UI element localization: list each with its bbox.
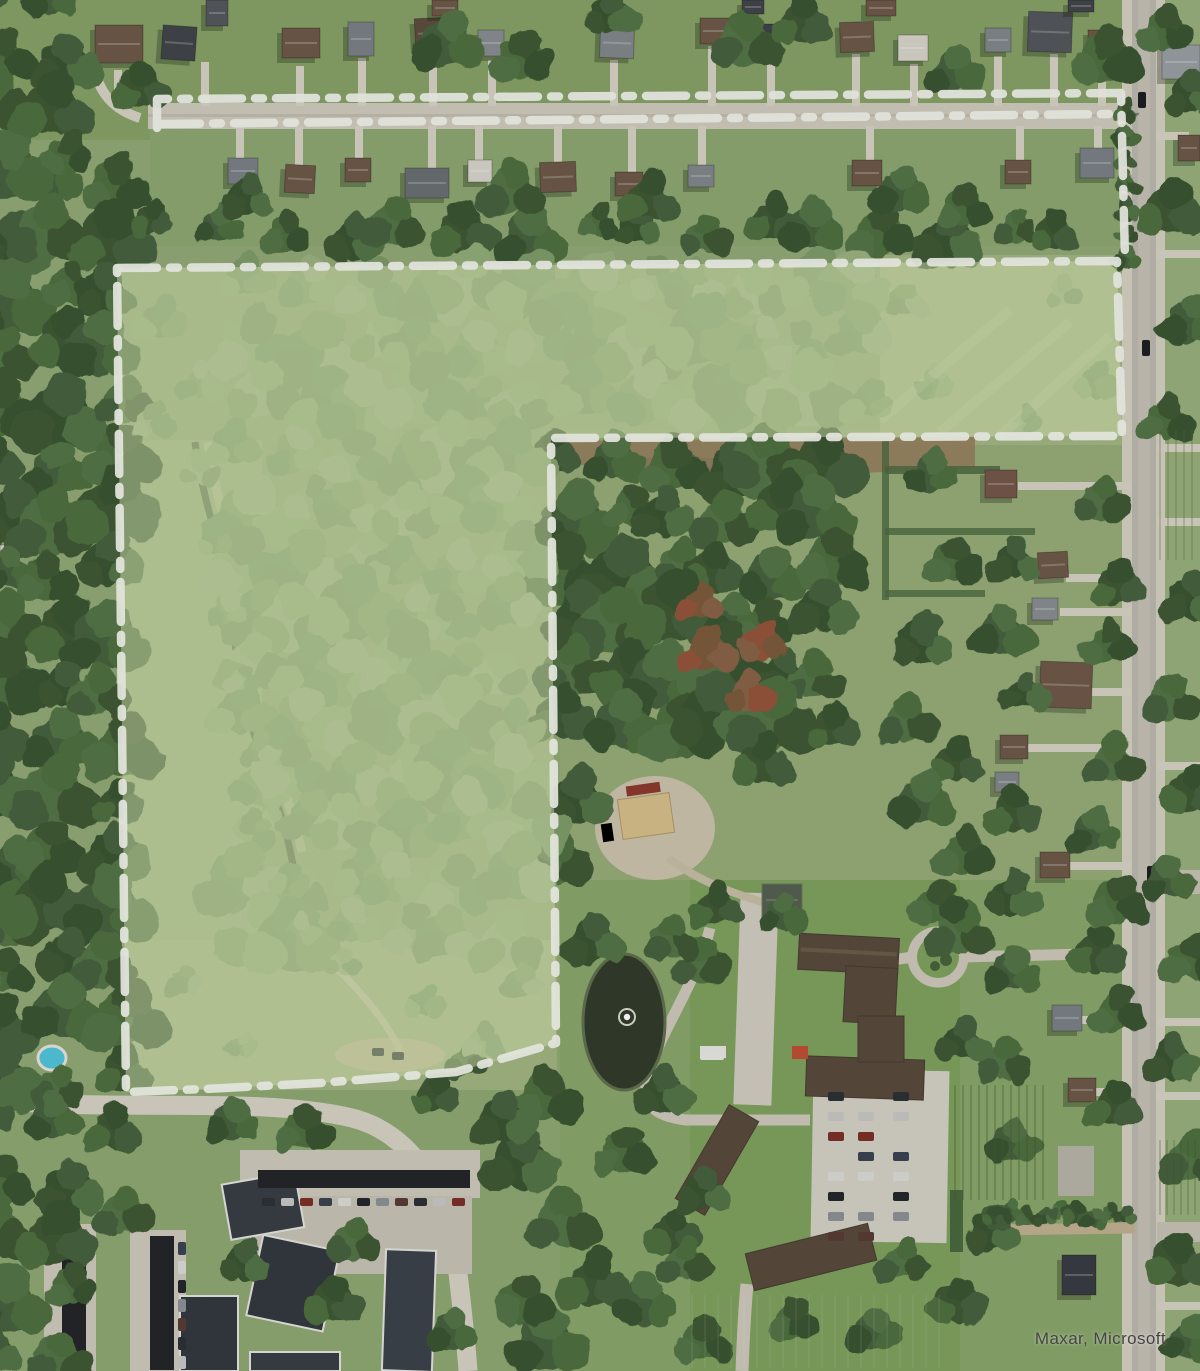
aerial-imagery (0, 0, 1200, 1371)
film-grain (0, 0, 1200, 1371)
map-viewport[interactable]: Maxar, Microsoft (0, 0, 1200, 1371)
map-attribution: Maxar, Microsoft (1035, 1329, 1166, 1349)
